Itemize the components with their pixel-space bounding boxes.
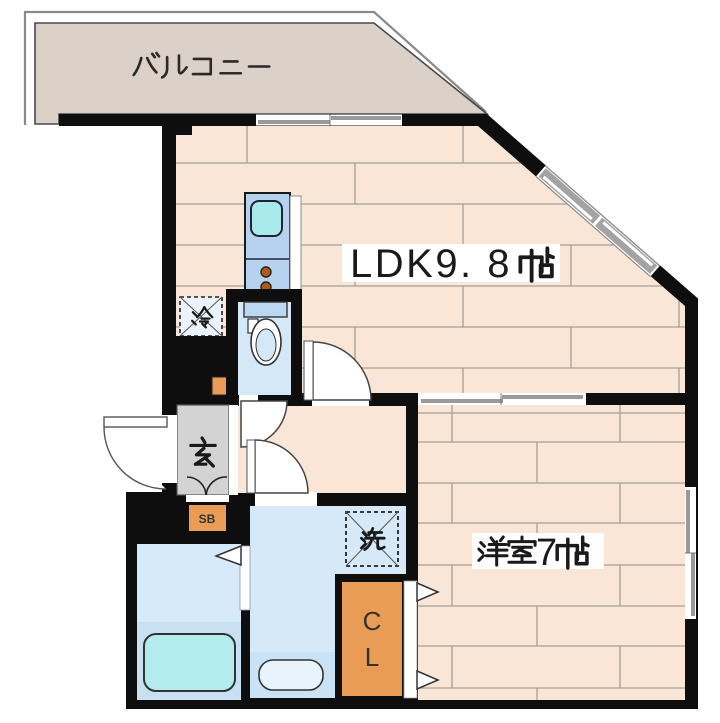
svg-text:C: C: [363, 606, 382, 636]
svg-text:LDK9. 8: LDK9. 8: [350, 242, 512, 286]
svg-text:L: L: [365, 642, 379, 672]
svg-text:SB: SB: [199, 512, 216, 526]
svg-text:7: 7: [536, 532, 557, 574]
